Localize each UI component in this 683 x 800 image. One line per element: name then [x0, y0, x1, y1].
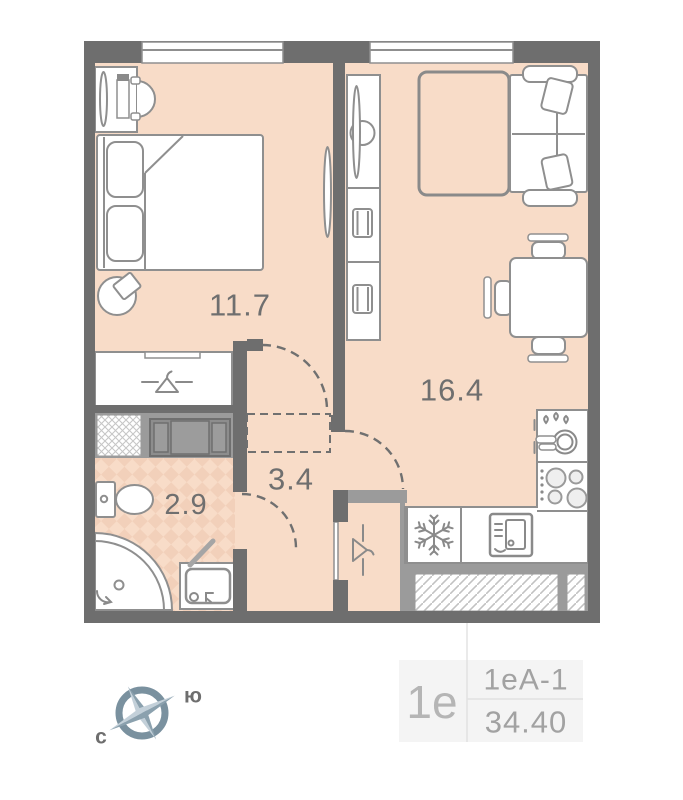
- wall-wardrobe-side: [233, 341, 247, 413]
- dining-table: [510, 258, 587, 337]
- bathroom-area-label: 2.9: [164, 489, 207, 521]
- info-box: 1е 1еА-1 34.40: [399, 623, 583, 742]
- balcony-hatch2: [567, 574, 585, 611]
- compass-rose-icon: ю с: [95, 669, 202, 757]
- layout-code: 1еА-1: [483, 664, 568, 697]
- compass-south-label: ю: [184, 685, 202, 708]
- window-living: [370, 42, 513, 63]
- double-bed: [97, 135, 263, 270]
- wall-stub: [331, 415, 345, 432]
- toilet: [96, 482, 153, 517]
- floor-plan-svg: 11.7 16.4 3.4 2.9 ю с 1е 1еА-1 34.40: [0, 0, 683, 800]
- closet-top-panel: [345, 490, 407, 503]
- chair-seat: [532, 242, 565, 259]
- desk-shelf: [117, 74, 129, 81]
- compass-north-label: с: [95, 726, 107, 749]
- wardrobe-handle: [145, 352, 200, 358]
- wall-bath-right-lower: [233, 549, 247, 611]
- door-jamb: [247, 339, 263, 351]
- chair-back: [528, 234, 568, 241]
- tv-shelving-column: [347, 75, 380, 340]
- wall-bedroom-living: [333, 63, 345, 415]
- monitor-icon: [100, 72, 107, 126]
- wall-right: [588, 41, 600, 623]
- wall-closet-sw: [333, 580, 348, 611]
- sofa-pillow: [541, 154, 573, 191]
- bedroom-area-label: 11.7: [209, 288, 271, 323]
- system-unit: [117, 80, 129, 118]
- wall-bath-right-upper: [233, 413, 247, 492]
- chair-arm: [131, 77, 140, 84]
- living-area-label: 16.4: [420, 373, 484, 408]
- wall-bottom: [84, 611, 600, 623]
- pillow: [107, 142, 143, 197]
- tv-icon: [353, 86, 360, 178]
- washing-machine: [150, 419, 230, 456]
- closet-door: [334, 522, 338, 580]
- fridge: [407, 507, 461, 563]
- total-area: 34.40: [485, 705, 568, 740]
- wall-bedroom-bath: [84, 405, 247, 413]
- shaft-hatch: [97, 415, 141, 456]
- armrest: [523, 190, 577, 206]
- wall-closet-nw: [333, 490, 348, 522]
- sofa: [510, 66, 587, 206]
- hallway-area-label: 3.4: [268, 462, 314, 497]
- bedroom-tv-icon: [324, 147, 331, 237]
- bathroom-sink: [180, 563, 236, 609]
- chair-back: [528, 355, 568, 362]
- wall-left: [84, 41, 95, 623]
- cabinet-box: [353, 285, 372, 313]
- window-bedroom: [142, 42, 283, 63]
- floor-plan-page: 11.7 16.4 3.4 2.9 ю с 1е 1еА-1 34.40: [0, 0, 683, 800]
- toilet-bowl: [116, 485, 153, 514]
- chair-back: [484, 277, 491, 318]
- chair-arm: [131, 113, 140, 120]
- balcony-hatch: [415, 574, 558, 611]
- dishwasher: [490, 514, 532, 556]
- plan-type: 1е: [406, 676, 457, 728]
- chair-seat: [532, 337, 565, 354]
- pillow: [107, 206, 143, 261]
- cabinet-box: [353, 209, 372, 237]
- bedroom-wardrobe: [95, 352, 232, 407]
